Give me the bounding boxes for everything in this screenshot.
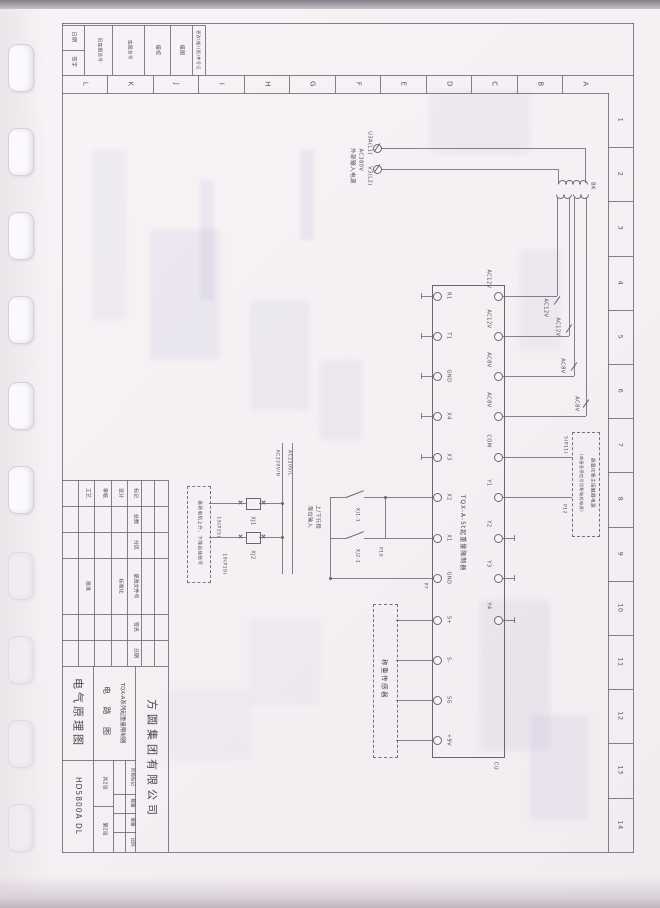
overload-caption-1: 超载切断主接触器电源 xyxy=(589,458,594,508)
sheet-page-label: 第2张 xyxy=(102,822,107,835)
frame-number: 14 xyxy=(617,820,624,829)
frame-number: 1 xyxy=(617,118,624,123)
terminal-label: S+ xyxy=(446,616,451,624)
company-name: 方圆集团有限公司 xyxy=(147,699,158,819)
frame-number: 11 xyxy=(617,657,624,666)
frame-number: 10 xyxy=(617,603,624,612)
rev-zone-label: 分区 xyxy=(133,540,138,550)
rev-date-label: 日期 xyxy=(133,648,138,658)
rev-sign-label: 签名 xyxy=(133,622,138,632)
input-phase1-label: U3A(L1) xyxy=(367,131,372,155)
terminal-label: X4 xyxy=(446,412,451,420)
frame-letter: B xyxy=(537,81,544,86)
quantity-label: 数量 xyxy=(129,799,134,808)
terminal-label: COM xyxy=(486,434,491,447)
relay-coil-xj1 xyxy=(246,498,261,510)
transformer-label: BK xyxy=(590,182,595,190)
wire-label-p11: 5(P11) xyxy=(562,436,567,454)
frame-number: 4 xyxy=(617,281,624,286)
terminal-label: AC8V xyxy=(486,352,491,367)
contact-xj1-1-label: XJ1-1 xyxy=(354,508,359,522)
frame-letter: J xyxy=(173,83,180,86)
terminal-label: Y2 xyxy=(486,520,491,527)
weight-label: 重量 xyxy=(129,818,134,827)
terminal-label: SG xyxy=(446,696,451,704)
frame-number: 6 xyxy=(617,389,624,394)
role-design-label: 设计 xyxy=(118,488,123,498)
terminal-label: X3 xyxy=(446,453,451,461)
terminal-label: GND xyxy=(446,370,451,383)
terminal-label: R1 xyxy=(446,292,451,300)
frame-number: 8 xyxy=(617,497,624,502)
terminal-label: +9V xyxy=(446,734,451,746)
wire-label-p15: 15(P15) xyxy=(215,516,220,537)
terminal-label: X2 xyxy=(446,493,451,501)
strip-change-record-label: 更改(幅)(图)件号记 xyxy=(196,30,200,70)
strip-date-label: 日期 xyxy=(71,31,76,42)
input-voltage-label: AC380V xyxy=(358,149,363,172)
terminal-label: S- xyxy=(446,657,451,663)
doc-number: HD5800A DL xyxy=(74,777,82,835)
stage-mark-label: 阶段标记 xyxy=(129,768,134,786)
start-signal-caption: 卷扬电机上升、下降启动信号 xyxy=(196,501,201,566)
frame-letter: C xyxy=(491,81,498,86)
wire-label-ac8v-1: AC8V xyxy=(560,358,565,373)
relay-coil-xj1-label: XJ1 xyxy=(250,516,255,526)
scan-top-edge xyxy=(0,0,660,9)
input-phase2-label: V3(L2) xyxy=(367,166,372,185)
strip-master-label: 底图总号 xyxy=(126,40,131,60)
wire-label-p19: 19(P19) xyxy=(221,553,226,574)
strip-trace-check-label: 描校 xyxy=(155,44,160,55)
scanned-schematic-page: L K J I H G F E D C B A 1 2 3 4 5 6 7 8 … xyxy=(0,0,660,908)
wire-label-ac8v-2: AC8V xyxy=(574,396,579,411)
frame-number: 5 xyxy=(617,335,624,340)
frame-letter: A xyxy=(582,81,589,86)
rev-docno-label: 更改文件号 xyxy=(133,573,138,598)
scan-bottom-edge xyxy=(0,876,660,908)
frame-letter: D xyxy=(446,81,453,87)
terminal-label: X1 xyxy=(446,534,451,542)
strip-sign-label: 签字 xyxy=(71,56,76,67)
frame-number: 3 xyxy=(617,226,624,231)
frame-number: 9 xyxy=(617,552,624,557)
overload-caption-2: (串接急停信号切断电机电源) xyxy=(579,454,583,512)
contact-xj2-1-label: XJ2-1 xyxy=(354,549,359,563)
frame-letter: L xyxy=(82,82,89,86)
title-block: 标记 处数 分区 更改文件号 签名 日期 设计 标准化 审核 工艺 批准 方圆集… xyxy=(62,480,168,852)
limit-caption-1: 上/下行程 xyxy=(315,505,320,529)
terminal-label: AC12V xyxy=(486,309,491,328)
frame-number: 2 xyxy=(617,172,624,177)
frame-number: 7 xyxy=(617,443,624,448)
wire-label-ac12v-2: AC12V xyxy=(555,317,560,336)
wire-label-ac220-l: AC220V/L xyxy=(286,450,291,476)
controller-title: TQX-A-5t起重量限制器 xyxy=(459,495,465,572)
wire-label-p7: P7 xyxy=(422,583,427,590)
role-review-label: 审核 xyxy=(102,488,107,498)
limit-caption-2: 限位输入 xyxy=(307,506,312,528)
rev-count-label: 处数 xyxy=(133,514,138,524)
frame-letter: G xyxy=(309,81,316,87)
frame-letter: K xyxy=(127,81,134,86)
role-process-label: 工艺 xyxy=(85,488,90,498)
terminal-label: Y1 xyxy=(486,479,491,486)
load-cell-caption: 称重传感器 xyxy=(381,659,388,699)
terminal-label: GND xyxy=(446,572,451,585)
wire-label-ac220-n: AC220V/N xyxy=(274,450,279,477)
terminal-label: AC12V xyxy=(486,269,491,288)
product-subtitle: 电 路 图 xyxy=(102,686,110,740)
strip-trace-draw-label: 描图 xyxy=(179,44,184,55)
product-name: TQX-A系列起重量限制器 xyxy=(118,683,124,744)
wire-label-p12: P12 xyxy=(561,504,566,514)
terminal-label: AC8V xyxy=(486,392,491,407)
wire-label-p10: P10 xyxy=(377,547,382,557)
frame-number: 12 xyxy=(617,711,624,720)
frame-number: 13 xyxy=(617,765,624,774)
scale-label: 比例 xyxy=(129,838,134,847)
relay-coil-xj2-label: XJ2 xyxy=(250,550,255,560)
controller-corner-label: CU xyxy=(493,762,498,770)
frame-letter: E xyxy=(400,82,407,87)
rev-mark-label: 标记 xyxy=(133,488,138,498)
frame-letter: I xyxy=(218,83,225,86)
sheet-total-label: 共2张 xyxy=(102,776,107,789)
strip-old-master-label: 旧底图总号 xyxy=(96,38,101,63)
role-approve-label: 批准 xyxy=(85,581,90,591)
terminal-label: T1 xyxy=(446,332,451,339)
frame-letter: H xyxy=(264,81,271,87)
wire-label-ac12v-1: AC12V xyxy=(543,298,548,317)
relay-coil-xj2 xyxy=(246,532,261,544)
role-standard-label: 标准化 xyxy=(118,578,123,593)
input-caption: 外部输入电源 xyxy=(348,148,354,184)
terminal-label: Y3 xyxy=(486,560,491,567)
terminal-label: Y4 xyxy=(486,602,491,609)
doc-title: 电气原理图 xyxy=(73,678,84,748)
frame-letter: F xyxy=(355,82,362,87)
